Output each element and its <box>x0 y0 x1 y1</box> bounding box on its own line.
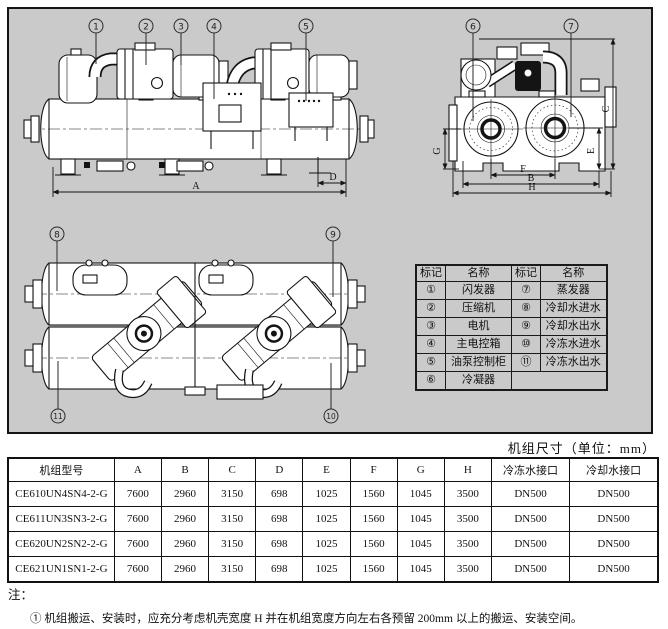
suction-elbow-end <box>543 57 561 95</box>
table-cell: DN500 <box>570 532 658 557</box>
table-cell: 1045 <box>397 482 444 507</box>
dim-H-label: H <box>528 182 535 193</box>
table-cell: 2960 <box>161 532 208 557</box>
table-cell: ④ <box>416 336 446 354</box>
callout-6-label: 6 <box>470 23 476 33</box>
table-cell: 1560 <box>350 557 397 583</box>
table-cell: 3500 <box>444 557 491 583</box>
legend-header-row: 标记名称标记名称 <box>416 265 607 282</box>
table-cell: ⑨ <box>512 318 541 336</box>
table-cell: 1045 <box>397 557 444 583</box>
callout-4-label: 4 <box>211 23 217 33</box>
table-cell: 3150 <box>209 507 256 532</box>
table-cell: 698 <box>256 532 303 557</box>
size-table-title: 机组尺寸（单位：mm） <box>508 438 656 457</box>
table-cell: 2960 <box>161 507 208 532</box>
table-cell: 蒸发器 <box>541 282 607 300</box>
legend-table: 标记名称标记名称 ①闪发器⑦蒸发器②压缩机⑧冷却水进水③电机⑨冷却水出水④主电控… <box>415 264 608 391</box>
table-cell: CE610UN4SN4-2-G <box>8 482 114 507</box>
table-cell: 3500 <box>444 482 491 507</box>
size-table-header-cell: E <box>303 458 350 482</box>
table-cell: 1045 <box>397 532 444 557</box>
table-cell: 7600 <box>114 557 161 583</box>
size-table-row: CE611UN3SN3-2-G7600296031506981025156010… <box>8 507 658 532</box>
page: { "panel": { "callouts": { "side": ["1",… <box>0 0 668 629</box>
table-cell: CE620UN2SN2-2-G <box>8 532 114 557</box>
callout-11-label: 11 <box>53 412 63 421</box>
legend-body: ①闪发器⑦蒸发器②压缩机⑧冷却水进水③电机⑨冷却水出水④主电控箱⑩冷冻水进水⑤油… <box>416 282 607 391</box>
drawing-panel: 1 2 3 4 5 A D <box>7 7 653 434</box>
table-cell: 3150 <box>209 557 256 583</box>
table-cell: 1025 <box>303 557 350 583</box>
legend-row: ③电机⑨冷却水出水 <box>416 318 607 336</box>
table-cell: ⑩ <box>512 336 541 354</box>
table-cell: 主电控箱 <box>446 336 512 354</box>
dim-E-label: E <box>586 148 597 154</box>
table-cell: 7600 <box>114 532 161 557</box>
table-cell: 闪发器 <box>446 282 512 300</box>
size-table-header-cell: C <box>209 458 256 482</box>
table-cell: 1025 <box>303 507 350 532</box>
size-table-header-cell: F <box>350 458 397 482</box>
table-cell: 3150 <box>209 532 256 557</box>
note-item: ① 机组搬运、安装时，应充分考虑机壳宽度 H 并在机组宽度方向左右各预留 200… <box>30 610 582 626</box>
table-cell: DN500 <box>570 557 658 583</box>
table-cell: DN500 <box>570 507 658 532</box>
table-cell: ⑧ <box>512 300 541 318</box>
size-table-row: CE610UN4SN4-2-G7600296031506981025156010… <box>8 482 658 507</box>
table-cell: 3500 <box>444 507 491 532</box>
table-cell: 冷冻水进水 <box>541 336 607 354</box>
legend-row: ④主电控箱⑩冷冻水进水 <box>416 336 607 354</box>
legend-header-cell: 名称 <box>446 265 512 282</box>
table-cell: 3500 <box>444 532 491 557</box>
table-cell: ⑤ <box>416 354 446 372</box>
size-table-header-cell: H <box>444 458 491 482</box>
table-cell: 冷却水进水 <box>541 300 607 318</box>
size-table-header-row: 机组型号ABCDEFGH冷冻水接口冷却水接口 <box>8 458 658 482</box>
table-cell: ③ <box>416 318 446 336</box>
legend-row: ⑥冷凝器 <box>416 372 607 391</box>
compressor-2 <box>255 43 309 99</box>
table-cell: 1560 <box>350 482 397 507</box>
callout-5-label: 5 <box>303 23 309 33</box>
table-cell: 油泵控制柜 <box>446 354 512 372</box>
table-cell: 3150 <box>209 482 256 507</box>
callout-10-label: 10 <box>326 412 336 421</box>
dim-G-label: G <box>432 147 443 154</box>
end-view-drawing: 6 7 C E G <box>432 19 616 197</box>
table-cell: 冷却水出水 <box>541 318 607 336</box>
size-table-header-cell: B <box>161 458 208 482</box>
callout-9-label: 9 <box>330 231 336 241</box>
legend-row: ①闪发器⑦蒸发器 <box>416 282 607 300</box>
dim-A-label: A <box>192 181 200 192</box>
legend-header-cell: 标记 <box>416 265 446 282</box>
table-cell: DN500 <box>570 482 658 507</box>
callout-3-label: 3 <box>178 23 184 33</box>
table-cell: DN500 <box>491 532 569 557</box>
table-cell: 2960 <box>161 557 208 583</box>
table-cell: 698 <box>256 482 303 507</box>
flash-tank-end <box>461 60 491 90</box>
table-cell: ① <box>416 282 446 300</box>
table-cell: 2960 <box>161 482 208 507</box>
table-cell: 1560 <box>350 532 397 557</box>
callout-1-label: 1 <box>93 23 99 33</box>
table-cell: 电机 <box>446 318 512 336</box>
table-cell: 1045 <box>397 507 444 532</box>
table-cell: ⑦ <box>512 282 541 300</box>
dim-F-label: F <box>520 164 526 175</box>
legend-row: ②压缩机⑧冷却水进水 <box>416 300 607 318</box>
notes-label: 注： <box>8 584 582 603</box>
side-view-drawing: 1 2 3 4 5 A D <box>24 19 374 197</box>
table-cell: CE611UN3SN3-2-G <box>8 507 114 532</box>
table-cell: ② <box>416 300 446 318</box>
size-table-row: CE621UN1SN1-2-G7600296031506981025156010… <box>8 557 658 583</box>
size-table-body: CE610UN4SN4-2-G7600296031506981025156010… <box>8 482 658 583</box>
legend-header-cell: 名称 <box>541 265 607 282</box>
size-table-header-cell: 冷却水接口 <box>570 458 658 482</box>
table-cell: 1025 <box>303 532 350 557</box>
table-cell: 冷冻水出水 <box>541 354 607 372</box>
size-table-header-cell: A <box>114 458 161 482</box>
size-table-header-cell: G <box>397 458 444 482</box>
table-cell: 698 <box>256 557 303 583</box>
table-cell: DN500 <box>491 482 569 507</box>
table-cell: 7600 <box>114 507 161 532</box>
plan-view-drawing: 8 9 11 10 <box>25 227 365 423</box>
table-cell: 1560 <box>350 507 397 532</box>
table-cell: 698 <box>256 507 303 532</box>
motor-2 <box>309 55 357 97</box>
table-cell: 压缩机 <box>446 300 512 318</box>
compressor-1 <box>117 43 173 99</box>
legend-row: ⑤油泵控制柜⑪冷冻水出水 <box>416 354 607 372</box>
callout-2-label: 2 <box>143 23 149 33</box>
size-table-header-cell: 冷冻水接口 <box>491 458 569 482</box>
table-cell: ⑥ <box>416 372 446 391</box>
callout-8-label: 8 <box>54 231 60 241</box>
callout-7-label: 7 <box>568 23 574 33</box>
size-table-header-cell: D <box>256 458 303 482</box>
size-table-row: CE620UN2SN2-2-G7600296031506981025156010… <box>8 532 658 557</box>
table-cell: DN500 <box>491 507 569 532</box>
table-cell: DN500 <box>491 557 569 583</box>
dim-C-label: C <box>601 105 612 112</box>
junction-box <box>217 385 263 399</box>
dimension-D: D <box>318 172 346 187</box>
table-cell: ⑪ <box>512 354 541 372</box>
notes-section: 注： ① 机组搬运、安装时，应充分考虑机壳宽度 H 并在机组宽度方向左右各预留 … <box>8 584 582 626</box>
table-cell: 冷凝器 <box>446 372 512 391</box>
dim-D-label: D <box>329 172 336 183</box>
table-cell: 1025 <box>303 482 350 507</box>
unit-dimensions-table: 机组型号ABCDEFGH冷冻水接口冷却水接口 CE610UN4SN4-2-G76… <box>7 457 659 583</box>
legend-header-cell: 标记 <box>512 265 541 282</box>
size-table-header-cell: 机组型号 <box>8 458 114 482</box>
table-cell: 7600 <box>114 482 161 507</box>
table-cell: CE621UN1SN1-2-G <box>8 557 114 583</box>
